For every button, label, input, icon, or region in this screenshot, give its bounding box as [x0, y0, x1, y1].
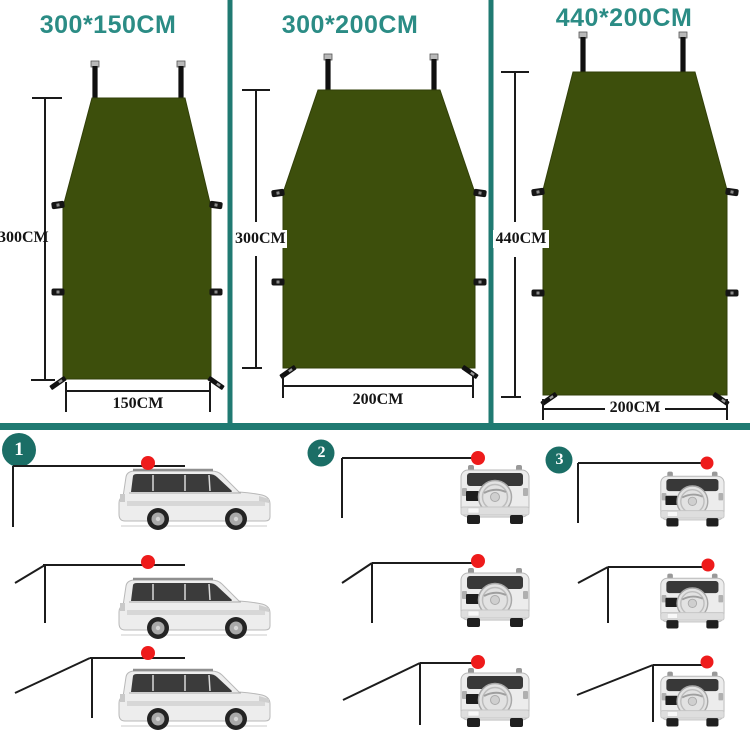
attachment-point-dot [471, 451, 485, 465]
height-label-panel2: 300CM [233, 230, 287, 248]
step-number-3: 3 [546, 451, 573, 469]
width-label-panel2: 200CM [298, 391, 458, 409]
section-divider [0, 423, 750, 430]
width-label-panel3: 200CM [585, 399, 685, 417]
setup-diagram-side-slope [15, 646, 270, 730]
setup-diagram-side-flat [13, 456, 270, 530]
tarp-diagram-300x150 [31, 61, 225, 412]
panel-divider [228, 0, 233, 424]
height-label-panel1: 300CM [0, 229, 44, 247]
tarp-canvas [543, 72, 727, 395]
attachment-point-dot [701, 457, 714, 470]
setup-diagram-rear-guyline [342, 554, 529, 627]
attachment-point-dot [471, 655, 485, 669]
tarp-diagram-440x200 [501, 32, 739, 420]
step-number-1: 1 [2, 439, 36, 461]
setup-diagram-rear-slope [343, 655, 529, 727]
width-label-panel1: 150CM [66, 395, 210, 413]
product-infographic: 300*150CM 300*200CM 440*200CM 300CM 300C… [0, 0, 750, 750]
awning-line [343, 663, 480, 725]
attachment-point-dot [471, 554, 485, 568]
panel-title-300x200: 300*200CM [250, 11, 450, 40]
step-number-2: 2 [308, 444, 335, 462]
attachment-point-dot [141, 555, 155, 569]
attachment-point-dot [141, 456, 155, 470]
setup-diagram-rear2-flat [578, 457, 724, 527]
tarp-diagram-300x200 [242, 54, 487, 398]
panel-title-440x200: 440*200CM [524, 4, 724, 33]
awning-line [342, 563, 480, 623]
awning-line [342, 458, 480, 518]
panel-title-300x150: 300*150CM [8, 11, 208, 40]
setup-diagram-rear-flat [342, 451, 529, 524]
height-label-panel3: 440CM [493, 230, 549, 248]
attachment-point-dot [141, 646, 155, 660]
height-dimension-line [242, 90, 270, 368]
attachment-point-dot [702, 559, 715, 572]
tarp-canvas [63, 98, 211, 379]
infographic-art [0, 0, 750, 750]
panel-divider [489, 0, 494, 424]
attachment-point-dot [701, 656, 714, 669]
setup-diagram-rear2-slope [577, 656, 724, 727]
setup-diagram-rear2-guyline [578, 559, 724, 629]
setup-diagram-side-guyline [15, 555, 270, 639]
tarp-canvas [283, 90, 475, 368]
